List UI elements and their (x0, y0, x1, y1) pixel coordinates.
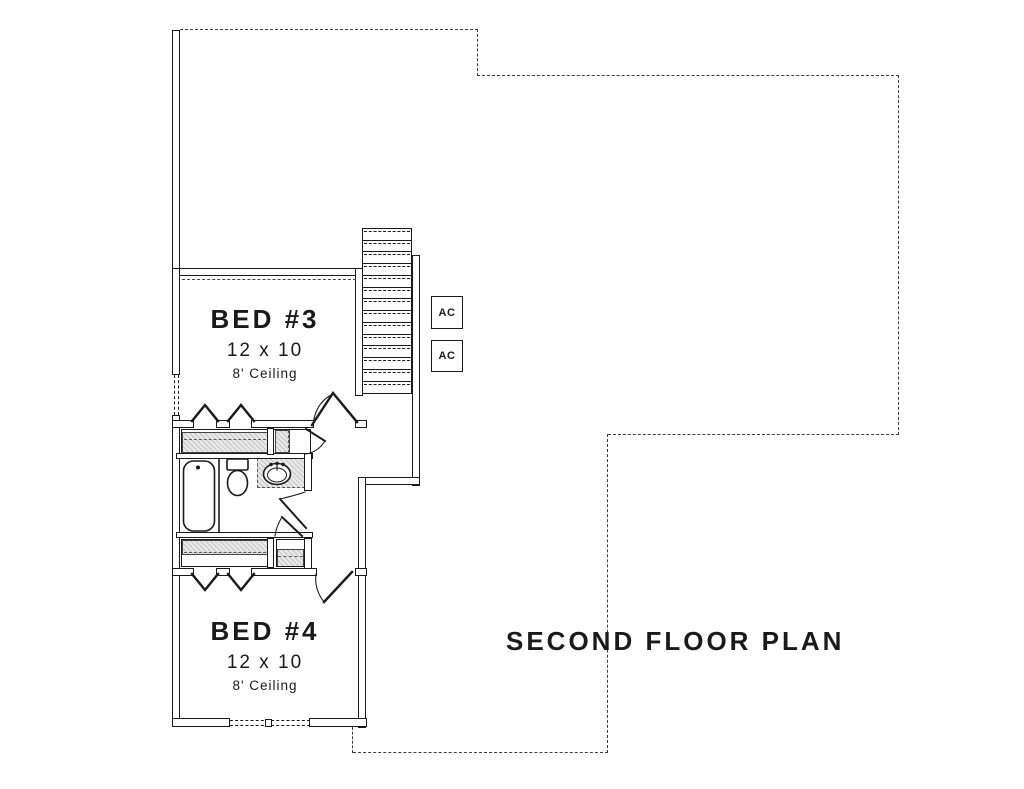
bed3-name: BED #3 (172, 306, 358, 332)
bed3-ceiling: 8' Ceiling (172, 367, 358, 381)
bed4-name: BED #4 (172, 618, 358, 644)
door-bed3 (312, 393, 357, 425)
second-floor-plan: AC AC (0, 0, 1024, 789)
door-closet-top (306, 429, 325, 454)
bed4-dimensions: 12 x 10 (172, 653, 358, 672)
bathtub (184, 459, 220, 532)
door-bathroom (280, 492, 306, 528)
toilet (227, 459, 248, 496)
bed4-ceiling: 8' Ceiling (172, 679, 358, 693)
plan-title: SECOND FLOOR PLAN (506, 628, 844, 654)
door-bed4 (316, 572, 352, 602)
fixtures-and-doors-layer (0, 0, 1024, 789)
bed4-label-block: BED #4 12 x 10 8' Ceiling (172, 618, 358, 693)
bed3-dimensions: 12 x 10 (172, 341, 358, 360)
bed3-label-block: BED #3 12 x 10 8' Ceiling (172, 306, 358, 381)
sink (264, 462, 291, 485)
